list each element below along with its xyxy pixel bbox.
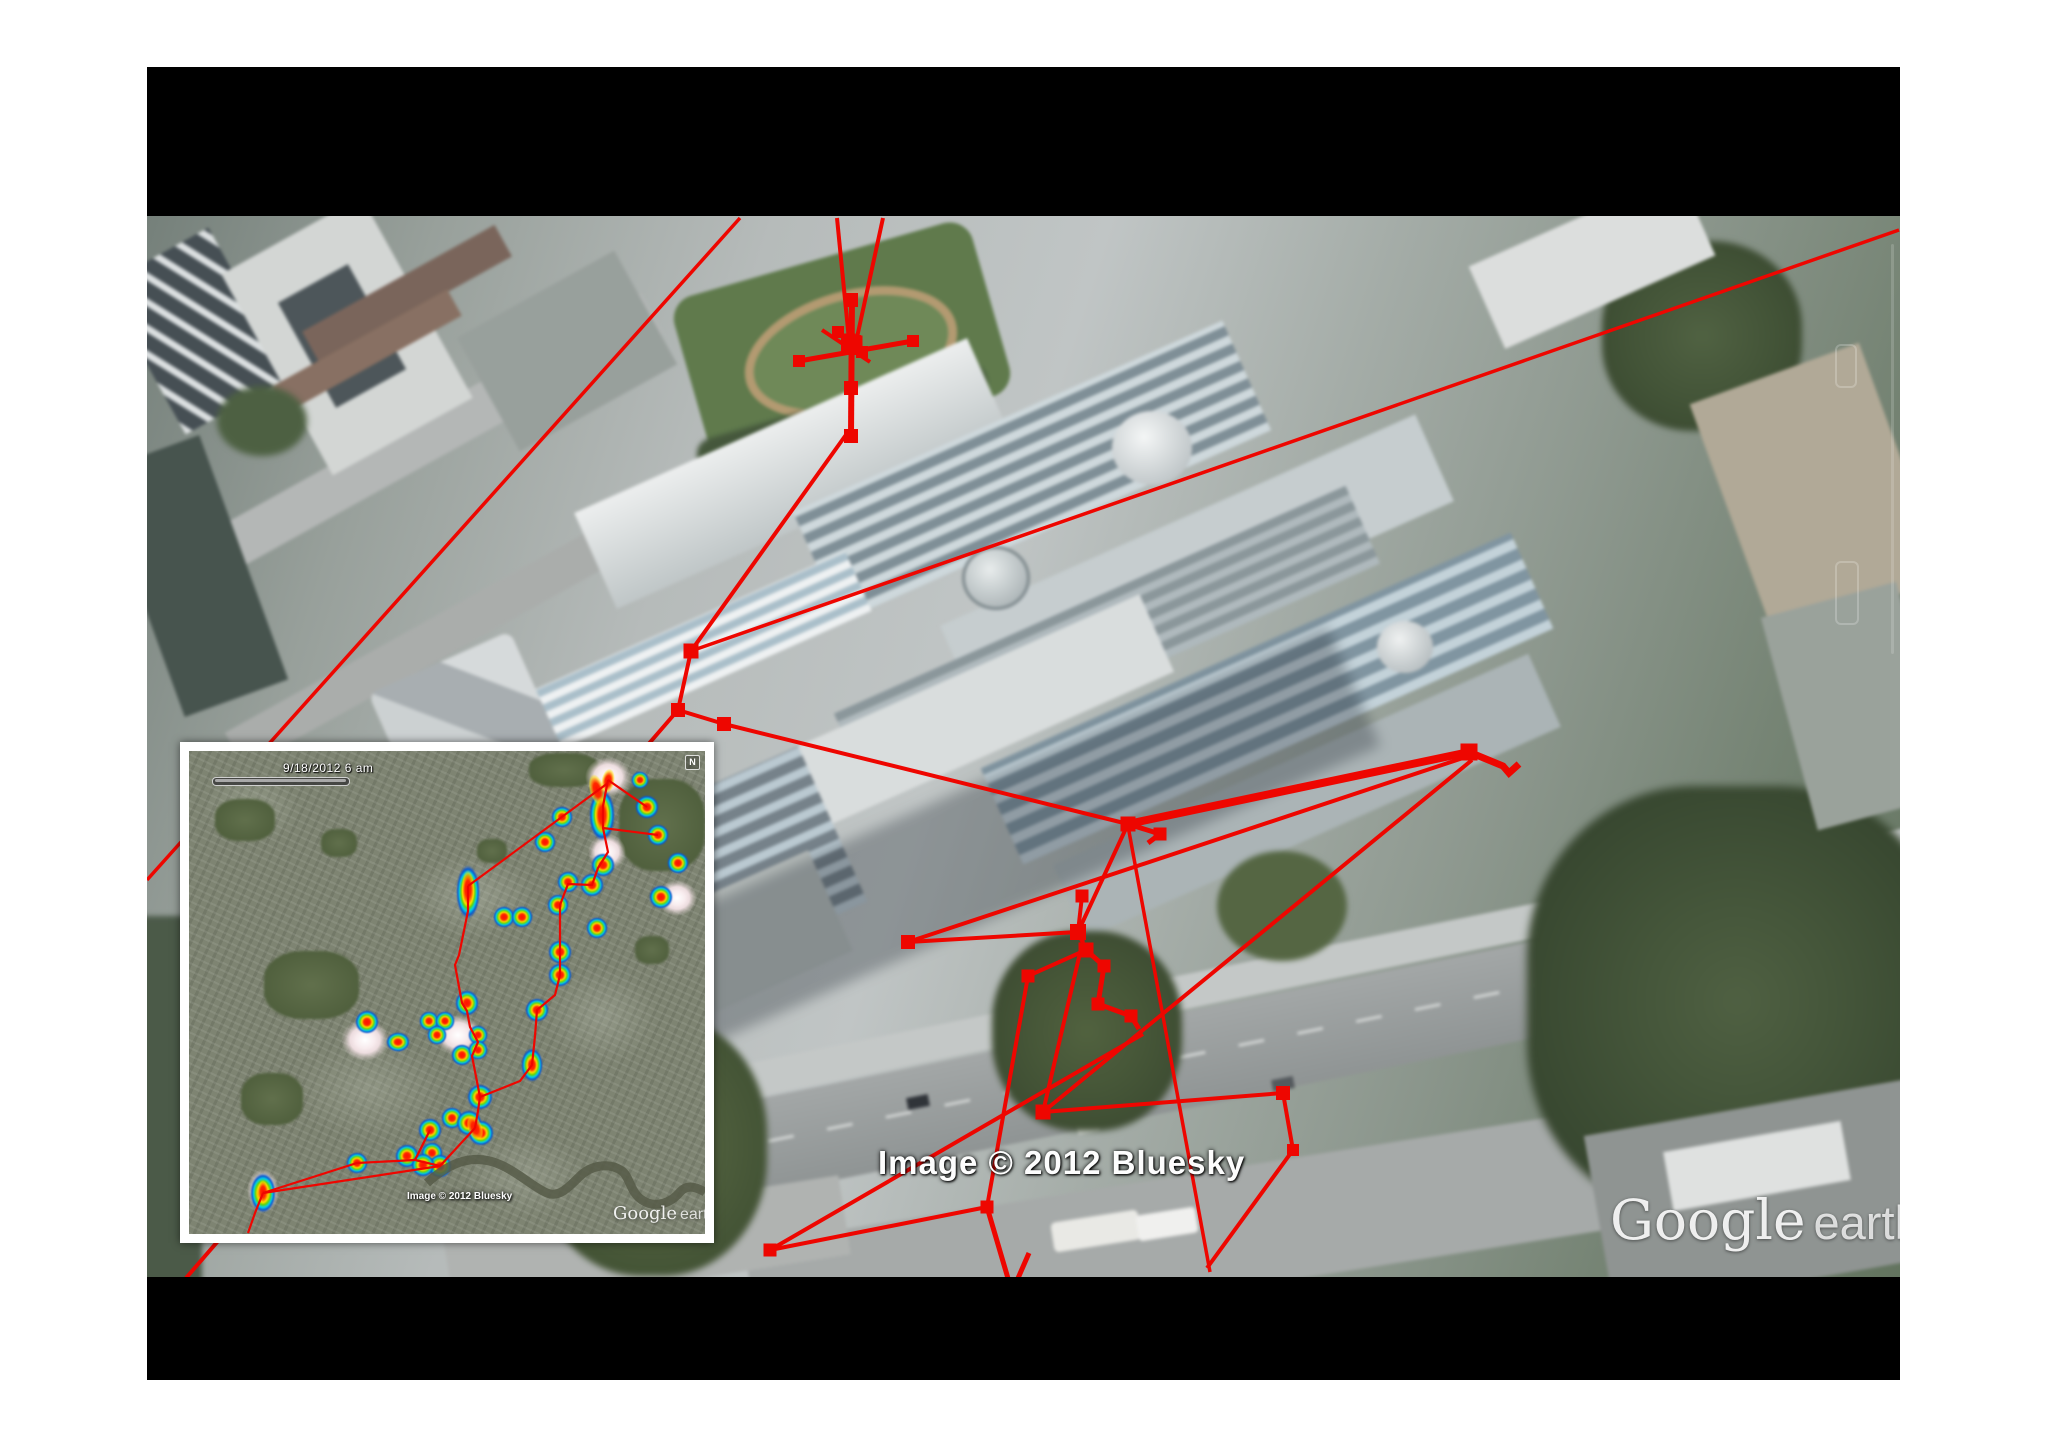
timeline-slider[interactable] <box>212 777 350 786</box>
google-earth-watermark: Googleearth <box>1610 1188 1900 1252</box>
earth-label: earth <box>680 1206 714 1223</box>
nav-control-icon <box>1835 561 1859 625</box>
map-attribution: Image © 2012 Bluesky <box>878 1144 1245 1182</box>
inset-track-overlay <box>189 751 705 1234</box>
inset-attribution: Image © 2012 Bluesky <box>407 1191 512 1202</box>
google-logo: Google <box>613 1203 677 1224</box>
nav-control-icon <box>1835 344 1857 388</box>
timeline-timestamp: 9/18/2012 6 am <box>283 761 373 775</box>
compass-icon[interactable]: N <box>685 755 700 770</box>
video-frame: Image © 2012 Bluesky Googleearth 9/18/20… <box>147 67 1900 1380</box>
page: { "app": {"name": "Google Earth"}, "colo… <box>0 0 2048 1447</box>
inset-google-earth-watermark: Googleearth <box>613 1203 714 1224</box>
google-logo: Google <box>1610 1188 1806 1252</box>
aerial-map-viewport[interactable]: Image © 2012 Bluesky Googleearth 9/18/20… <box>147 216 1900 1277</box>
earth-label: earth <box>1814 1196 1900 1249</box>
zoom-slider[interactable] <box>1891 244 1894 654</box>
timeline-progress <box>215 779 346 782</box>
inset-overview-map[interactable]: 9/18/2012 6 am N Image © 2012 Bluesky Go… <box>180 742 714 1243</box>
